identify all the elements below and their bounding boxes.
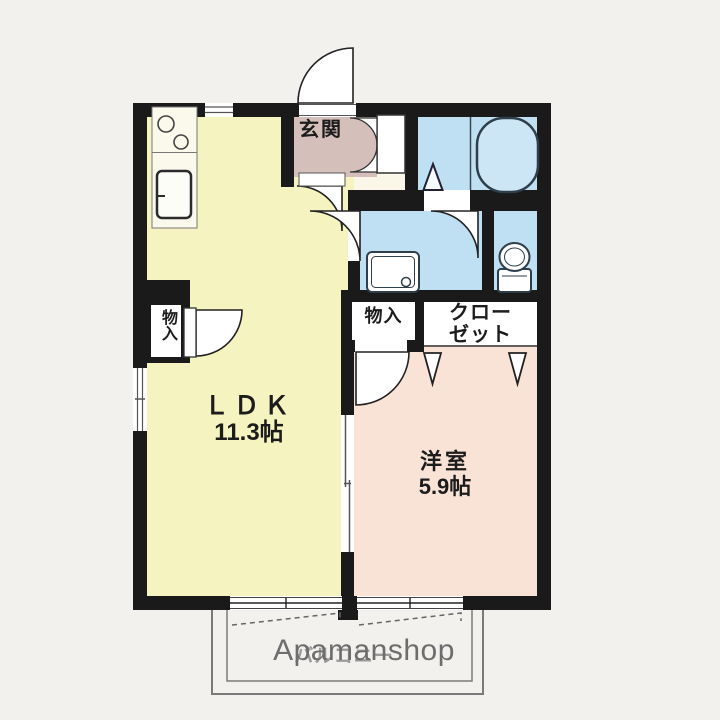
- wall-entrance-bath: [405, 110, 418, 190]
- front-door-threshold: [299, 103, 356, 117]
- shoe-cabinet-icon: [377, 115, 405, 173]
- wall-left-lower: [133, 431, 147, 610]
- floorplan-image: バルコニー Apamanshop 玄関 ＬＤＫ 11.3帖 洋室 5.9帖 物入…: [0, 0, 720, 720]
- wall-toilet-west: [482, 211, 494, 290]
- watermark-brand: Apamanshop: [262, 634, 466, 668]
- wall-bottom-1: [133, 596, 230, 610]
- storage-center-door-gap: [355, 340, 407, 352]
- storage-left-label: 物入: [154, 309, 180, 357]
- storage-left-door-leaf: [184, 308, 196, 357]
- floor-plan-svg: [0, 0, 720, 720]
- window-top-icon: [205, 103, 233, 117]
- kitchen-unit: [152, 107, 197, 228]
- washbasin-icon: [367, 252, 419, 292]
- western-room-size: 5.9帖: [395, 475, 495, 500]
- entrance-step: [299, 173, 345, 186]
- wall-right: [537, 103, 551, 610]
- sliding-partition-icon: [341, 415, 354, 552]
- wall-ldk-western-lower: [341, 552, 354, 596]
- entrance-label: 玄関: [294, 119, 348, 141]
- bath-door-gap: [424, 190, 470, 211]
- ldk-room-name: ＬＤＫ: [198, 392, 300, 420]
- entrance-door-swing-icon: [298, 48, 353, 103]
- kitchen-sink-icon: [157, 171, 191, 218]
- bathtub-icon: [477, 118, 538, 192]
- closet-label: クロー ゼット: [424, 302, 537, 346]
- western-room-name: 洋室: [395, 450, 495, 475]
- sliding-window-western-icon: [357, 596, 463, 610]
- ldk-room-size: 11.3帖: [198, 420, 300, 447]
- wall-ldk-western-upper: [341, 352, 354, 415]
- wall-bottom-2: [463, 596, 551, 610]
- storage-center-label: 物入: [352, 306, 415, 326]
- wall-entrance-left: [281, 103, 294, 187]
- sliding-window-ldk-icon: [230, 596, 342, 610]
- window-left-icon: [133, 368, 147, 431]
